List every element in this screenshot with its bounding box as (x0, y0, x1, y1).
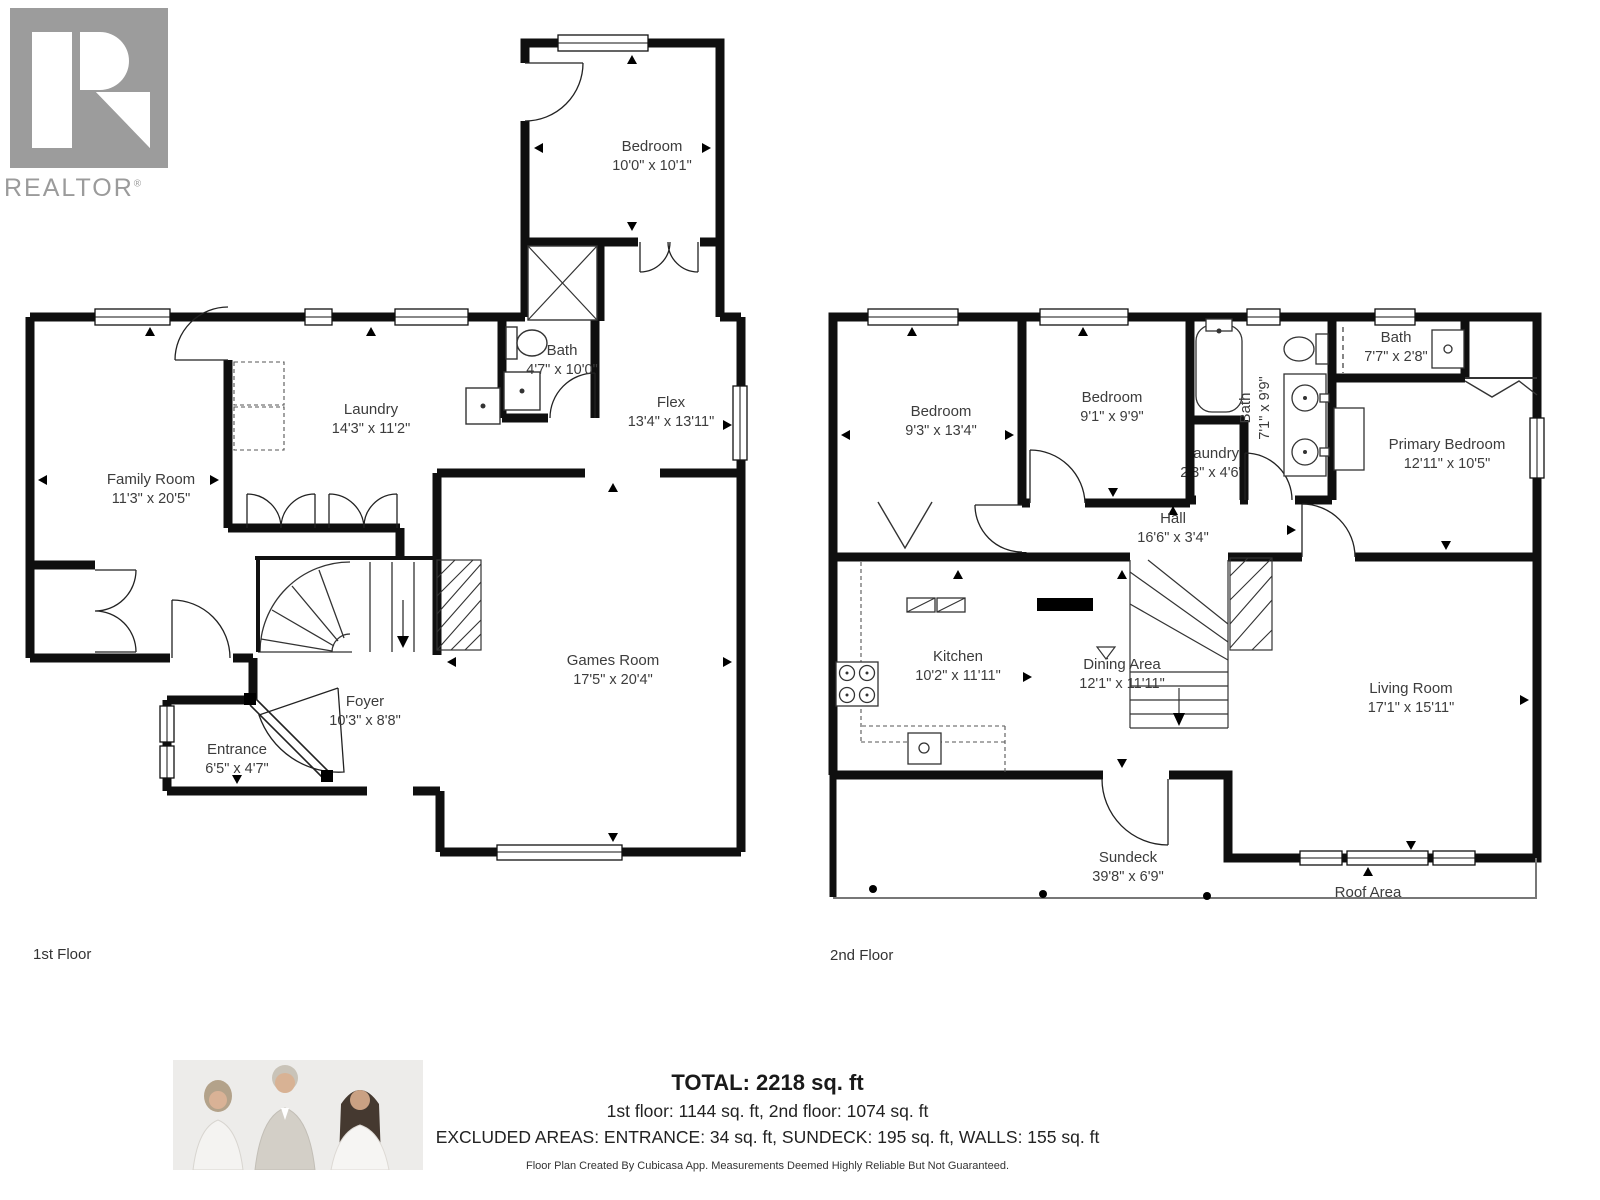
floorplan-drawing (0, 0, 1600, 1200)
room-label-family-room: Family Room11'3" x 20'5" (107, 470, 195, 510)
room-label-living-room: Living Room17'1" x 15'11" (1368, 679, 1455, 719)
room-label-roof-area: Roof Area (1335, 883, 1402, 903)
room-label-bedroom-1f: Bedroom10'0" x 10'1" (612, 137, 692, 177)
room-label-bath-main-2f: Bath7'1" x 9'9" (1236, 376, 1276, 439)
room-label-bedroom1-2f: Bedroom9'3" x 13'4" (905, 402, 976, 442)
room-label-dining-area: Dining Area12'1" x 11'11" (1079, 655, 1164, 695)
room-label-entrance: Entrance6'5" x 4'7" (205, 740, 268, 780)
room-label-games-room: Games Room17'5" x 20'4" (567, 651, 660, 691)
agent-team-photo (173, 1060, 423, 1170)
floor2-caption: 2nd Floor (830, 947, 893, 964)
room-label-sundeck: Sundeck39'8" x 6'9" (1092, 848, 1163, 888)
floor1-caption: 1st Floor (33, 946, 91, 963)
room-label-foyer: Foyer10'3" x 8'8" (329, 692, 400, 732)
registered-trademark-symbol: ® (134, 179, 141, 190)
room-label-bedroom2-2f: Bedroom9'1" x 9'9" (1080, 388, 1143, 428)
room-label-flex: Flex13'4" x 13'11" (628, 393, 715, 433)
room-label-bath-small-2f: Bath7'7" x 2'8" (1364, 328, 1427, 368)
room-label-hall: Hall16'6" x 3'4" (1137, 509, 1208, 549)
realtor-logo (10, 8, 168, 170)
floorplan-page: REALTOR® Bedroom10'0" x 10'1" Bath4'7" x… (0, 0, 1600, 1200)
room-label-primary-bedroom: Primary Bedroom12'11" x 10'5" (1389, 435, 1506, 475)
room-label-laundry-1f: Laundry14'3" x 11'2" (332, 400, 410, 440)
room-label-kitchen: Kitchen10'2" x 11'11" (915, 647, 1000, 687)
realtor-logo-text: REALTOR® (4, 174, 141, 203)
room-label-bath-1f: Bath4'7" x 10'0" (526, 341, 597, 381)
